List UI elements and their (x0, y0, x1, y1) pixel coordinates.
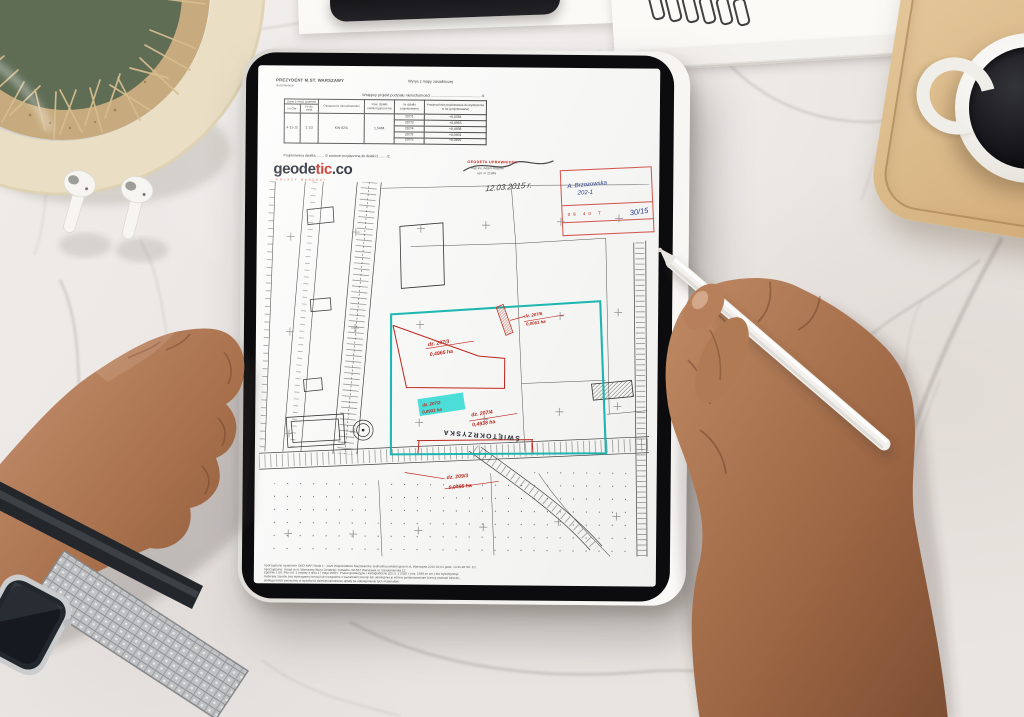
parcel-area: 0,4938 ha (472, 419, 496, 428)
parcel-label: dz. 207/6 (524, 311, 543, 319)
tablet-screen[interactable]: PREZYDENT M.ST. WARSZAWY Śródmieście Wyr… (254, 65, 661, 586)
street-name: ŚWIĘTOKRZYSKA (442, 428, 520, 443)
parcel-area: 0,4965 ha (429, 349, 453, 358)
signature-squiggle (461, 156, 556, 177)
col-nr-obr: Nr Obr. (284, 104, 300, 113)
cell-pow: 1,5484 (364, 114, 394, 144)
doc-issuer: PREZYDENT M.ST. WARSZAWY (276, 77, 344, 83)
cell-nr-obr: 4-11-15 (284, 113, 300, 143)
cell-proj-pow: +0,0495 (424, 138, 486, 144)
col-nr-proj: Nr działki projektowanej (394, 100, 424, 115)
surveyor-signature-block: GEODETA UPRAWNIONY mgr inż. Adam Różycki… (467, 160, 577, 161)
parcel-label: dz. 207/4 (471, 409, 493, 418)
col-pow: Pow. działki ewidencyjnej w ha (364, 100, 394, 115)
logo-part2: tic (315, 161, 331, 178)
fine-print: Sporządzono systemem GEO-MAP Skala 1 : 1… (264, 564, 650, 586)
col-oznaczenie: Oznaczenie nieruchomości (318, 99, 364, 114)
parcel-area: 0,0061 ha (526, 319, 547, 327)
cell-nr-dz: 2 1/2 (300, 113, 318, 143)
col-nr-dz: Nr dz. ewid. (300, 105, 318, 114)
tablet: PREZYDENT M.ST. WARSZAWY Śródmieście Wyr… (238, 48, 691, 606)
geodetic-logo: geodetic.co (273, 160, 352, 178)
doc-title: Wstępny projekt podziału nieruchomości .… (298, 93, 548, 99)
doc-note: Projektowana działka ........ /2 zostani… (283, 153, 390, 158)
photo-scene: PREZYDENT M.ST. WARSZAWY Śródmieście Wyr… (0, 0, 1024, 717)
cell-oznaczenie: KW 82/6 (318, 114, 364, 144)
parcel-table: Dane z ewid. gruntów Oznaczenie nierucho… (284, 98, 487, 145)
cell-proj-nr: 207/5 (394, 138, 424, 144)
logo-part3: .co (332, 161, 353, 178)
col-pow-proj: Powierzchnia projektowana do wydzielenia… (424, 100, 486, 115)
airpods (40, 150, 200, 290)
logo-part1: geode (273, 160, 315, 177)
doc-type: Wyrys z mapy zasadniczej (408, 80, 453, 84)
cadastral-map: dz. 207/3 0,4965 ha dz. 207/4 0,4938 ha … (258, 181, 651, 566)
doc-issuer-sub: Śródmieście (276, 83, 294, 87)
